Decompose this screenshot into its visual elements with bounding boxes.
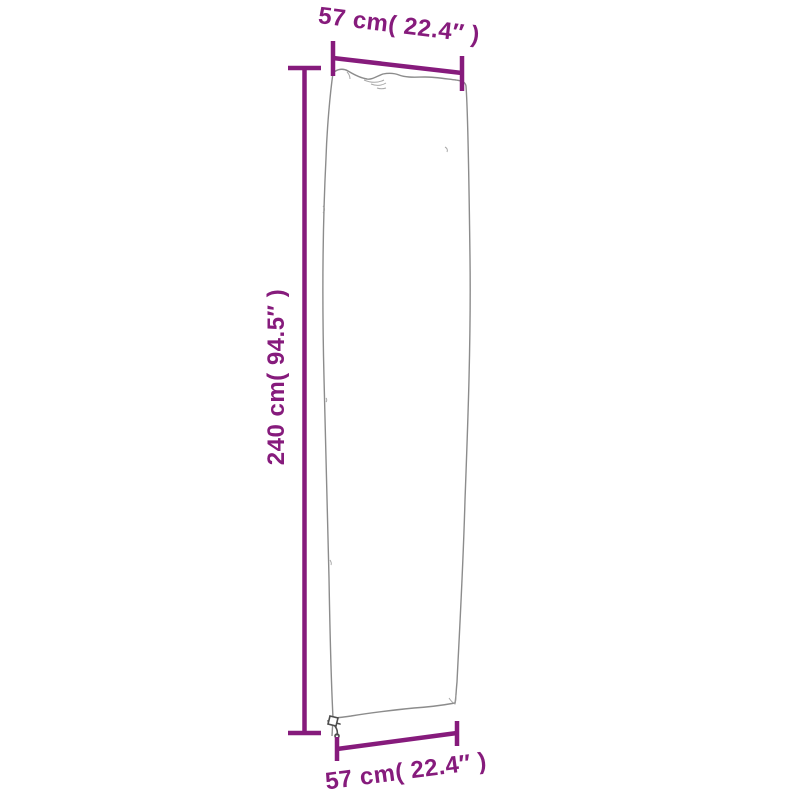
bottom-dimension-rule [337,733,457,749]
top-dimension-rule [333,58,462,73]
side-dimension-line [288,68,321,733]
zipper-pull-icon [328,716,340,738]
side-dimension-label: 240 cm( 94.5″ ) [263,289,291,465]
dimension-diagram: 57 cm( 22.4″ ) 240 cm( 94.5″ ) 57 cm( 22… [0,0,800,800]
product-outline-drawing [0,0,800,800]
cover-outline [323,69,470,718]
